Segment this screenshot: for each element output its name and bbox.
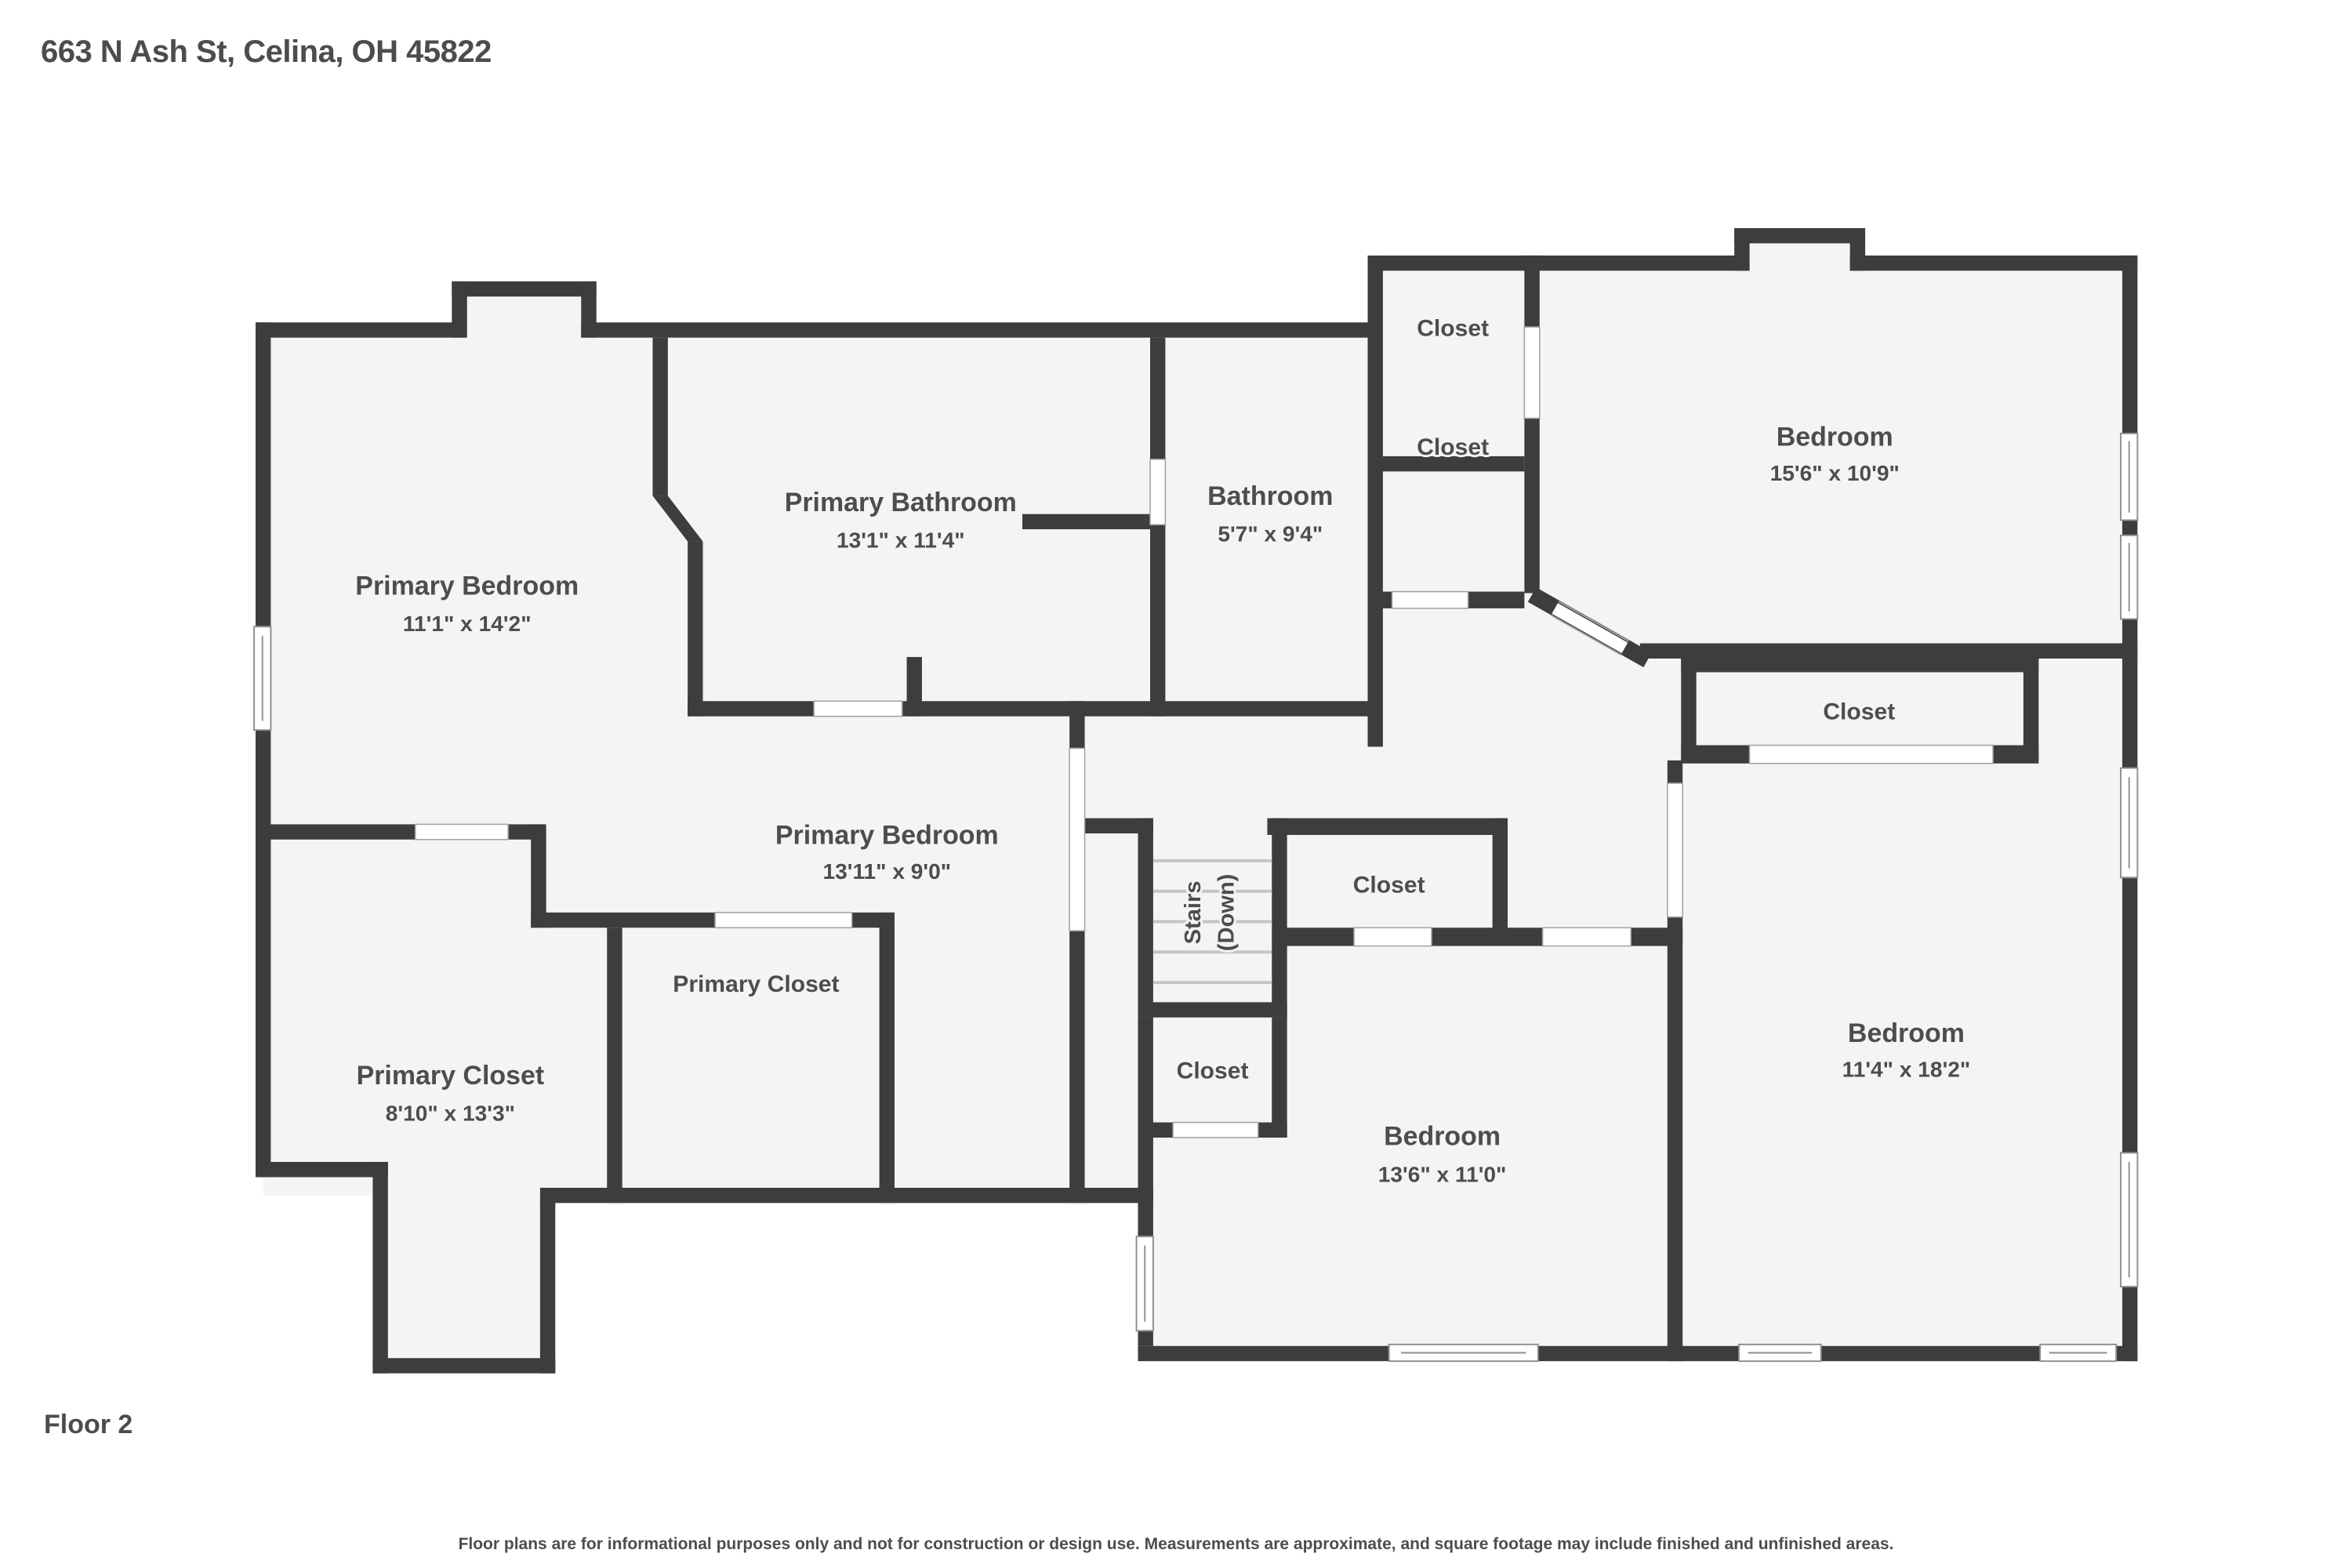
floor-label: Floor 2 [44,1410,132,1440]
disclaimer-text: Floor plans are for informational purpos… [0,1535,2352,1554]
room-label-closet-top-1: Closet [1417,316,1489,342]
room-label-closet-right: Closet [1823,699,1895,725]
room-label-stairs-down: (Down) [1214,874,1240,952]
room-dims-primary-bathroom: 13'1" x 11'4" [837,528,965,552]
room-label-closet-top-2: Closet [1417,434,1489,460]
room-label-primary-closet-upper: Primary Closet [673,971,839,997]
floor-plan-page: 663 N Ash St, Celina, OH 45822 [0,0,2352,1568]
window-bedroom-topright-2 [2121,535,2137,619]
room-label-bathroom: Bathroom [1207,481,1333,511]
room-dims-bedroom-right: 11'4" x 18'2" [1842,1057,1971,1081]
room-dims-bathroom: 5'7" x 9'4" [1218,522,1323,546]
window-bedroom-right-1 [2121,768,2137,878]
window-primary-bedroom-left [254,626,270,730]
room-label-stairs: Stairs [1181,880,1206,944]
room-label-closet-by-stairs: Closet [1353,873,1425,898]
window-bedroom-right-bottom-1 [1739,1345,1821,1361]
window-bedroom-right-2 [2121,1152,2137,1287]
window-bedroom-middle-bottom [1389,1345,1538,1361]
room-dims-primary-bedroom-1: 11'1" x 14'2" [403,612,532,636]
room-label-primary-closet-lower: Primary Closet [357,1061,545,1091]
room-dims-bedroom-middle: 13'6" x 11'0" [1378,1162,1507,1186]
room-label-primary-bedroom-2: Primary Bedroom [775,821,999,851]
room-label-bedroom-topright: Bedroom [1777,422,1893,452]
floor-plan-drawing: Primary Bedroom 11'1" x 14'2" Primary Ba… [0,0,2352,1568]
room-label-primary-bathroom: Primary Bathroom [785,488,1017,517]
window-bedroom-topright-1 [2121,434,2137,521]
room-dims-primary-closet-lower: 8'10" x 13'3" [386,1102,515,1126]
room-label-closet-below-stairs: Closet [1177,1058,1249,1083]
window-bedroom-right-bottom-2 [2040,1345,2116,1361]
room-label-primary-bedroom-1: Primary Bedroom [355,571,579,601]
room-dims-primary-bedroom-2: 13'11" x 9'0" [822,859,951,884]
room-label-bedroom-right: Bedroom [1848,1018,1965,1048]
room-label-bedroom-middle: Bedroom [1384,1122,1501,1152]
room-dims-bedroom-topright: 15'6" x 10'9" [1770,461,1900,485]
window-bedroom-middle-left [1137,1236,1153,1330]
